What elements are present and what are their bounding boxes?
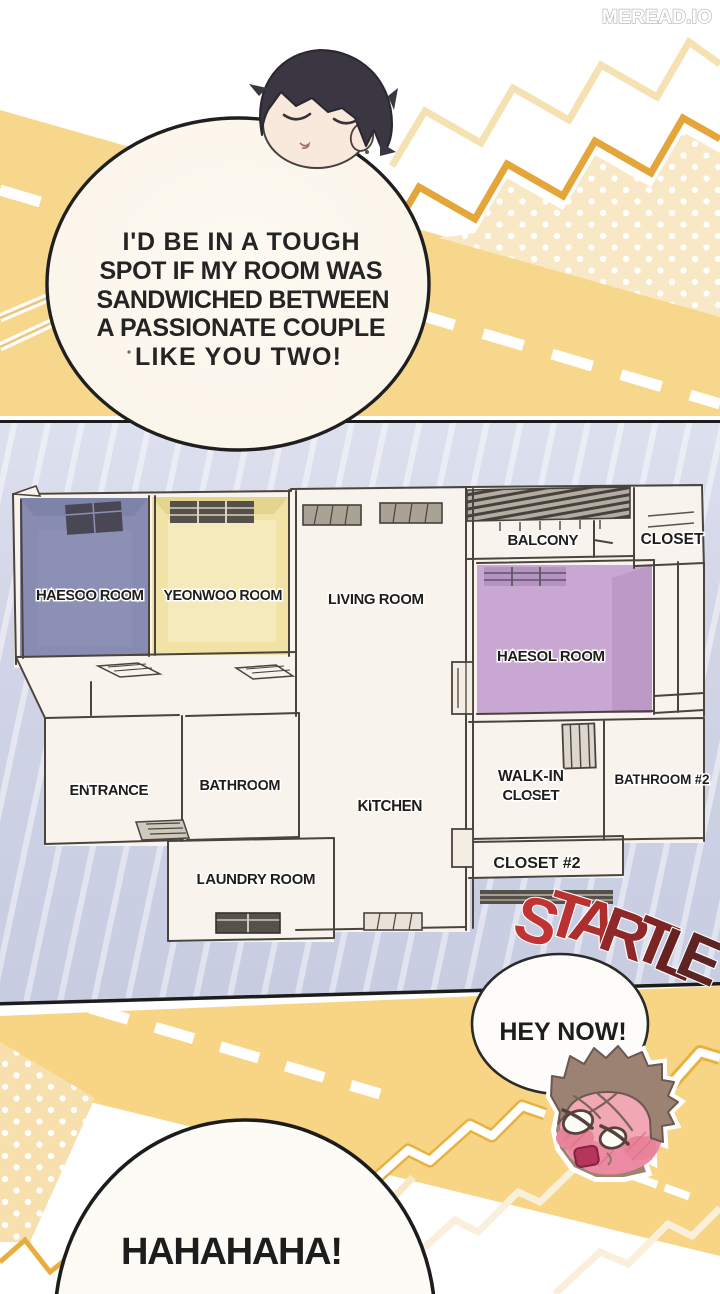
svg-text:CLOSET: CLOSET — [641, 531, 704, 548]
svg-text:CLOSET #2: CLOSET #2 — [493, 855, 580, 872]
svg-text:SPOT IF MY ROOM WAS: SPOT IF MY ROOM WAS — [100, 257, 383, 285]
svg-text:LIVING ROOM: LIVING ROOM — [328, 591, 424, 608]
svg-text:A PASSIONATE COUPLE: A PASSIONATE COUPLE — [97, 314, 386, 342]
svg-text:LAUNDRY ROOM: LAUNDRY ROOM — [197, 871, 316, 888]
svg-text:HAESOL ROOM: HAESOL ROOM — [497, 648, 605, 665]
svg-text:ENTRANCE: ENTRANCE — [70, 782, 149, 799]
svg-text:BATHROOM #2: BATHROOM #2 — [615, 772, 710, 787]
svg-text:CLOSET: CLOSET — [503, 787, 560, 804]
svg-text:HAHAHAHA!: HAHAHAHA! — [121, 1231, 343, 1273]
svg-text:LIKE YOU TWO!: LIKE YOU TWO! — [135, 343, 341, 371]
svg-text:HAESOO ROOM: HAESOO ROOM — [36, 587, 144, 604]
svg-text:MEREAD.IO: MEREAD.IO — [602, 7, 712, 28]
svg-text:WALK-IN: WALK-IN — [498, 768, 564, 785]
svg-text:I'D BE IN A TOUGH: I'D BE IN A TOUGH — [123, 228, 360, 256]
svg-text:YEONWOO ROOM: YEONWOO ROOM — [164, 588, 283, 604]
svg-text:BALCONY: BALCONY — [508, 532, 579, 549]
svg-text:BATHROOM: BATHROOM — [200, 778, 281, 794]
svg-text:HEY NOW!: HEY NOW! — [499, 1018, 626, 1046]
svg-text:SANDWICHED BETWEEN: SANDWICHED BETWEEN — [97, 286, 390, 314]
svg-text:KITCHEN: KITCHEN — [358, 798, 423, 815]
